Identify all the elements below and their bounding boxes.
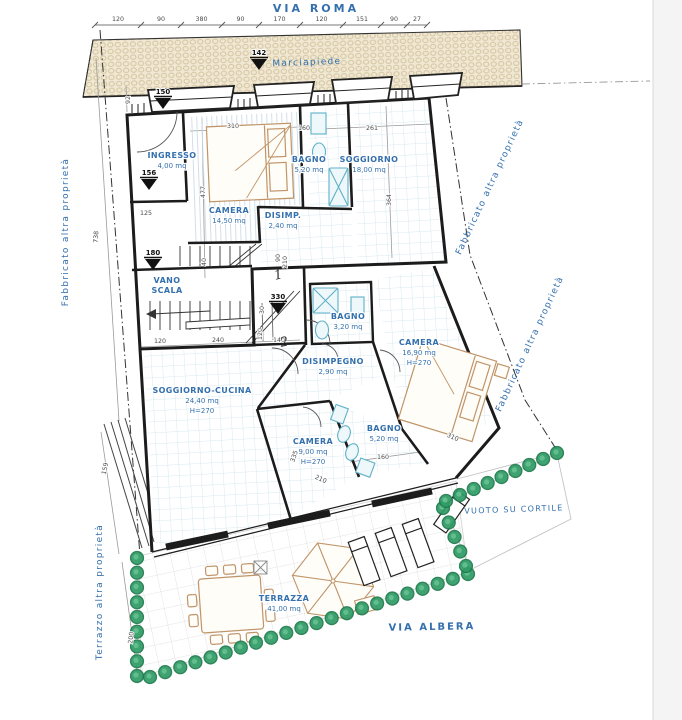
top-dimension-value: 90 xyxy=(157,16,165,23)
level-marker-value: 150 xyxy=(156,88,171,96)
floor-plan-page: 12090380901701201519027 142150156180330 … xyxy=(0,0,682,720)
page-edge-strip xyxy=(653,0,682,720)
room-label-line: BAGNO xyxy=(367,424,401,433)
level-marker-value: 156 xyxy=(142,169,157,177)
street-label-via-roma: VIA ROMA xyxy=(273,2,359,15)
room-label-line: 24,40 mq xyxy=(185,397,219,405)
room-label-line: 41,00 mq xyxy=(267,605,301,613)
area-label-terrazzo-left: Terrazzo altra proprietà xyxy=(95,524,105,661)
room-label-line: 18,00 mq xyxy=(352,166,386,174)
room-label-line: 2,90 mq xyxy=(318,368,347,376)
dimension-text: 240 xyxy=(212,337,224,344)
top-dimension-value: 380 xyxy=(195,16,207,23)
dimension-text: 90 xyxy=(275,254,282,262)
dimension-text: 92 xyxy=(125,96,132,104)
dimension-text: 125 xyxy=(140,210,152,217)
dimension-text: 40 xyxy=(201,258,208,266)
bed-double-upper xyxy=(206,123,293,202)
top-dimension-value: 120 xyxy=(112,16,124,23)
room-label-line: VANO xyxy=(154,276,181,285)
room-label-line: 3,20 mq xyxy=(333,323,362,331)
top-dimension-value: 120 xyxy=(315,16,327,23)
room-label-line: BAGNO xyxy=(292,155,326,164)
room-label-line: SOGGIORNO xyxy=(340,155,399,164)
dimension-text: 310 xyxy=(227,123,239,130)
room-label-line: SCALA xyxy=(151,286,183,295)
room-label-line: CAMERA xyxy=(209,206,250,215)
top-dimension-value: 170 xyxy=(273,16,285,23)
dimension-text: 160 xyxy=(298,125,310,132)
room-label-line: 5,20 mq xyxy=(369,435,398,443)
dimension-text: 364 xyxy=(386,194,393,206)
room-label-line: BAGNO xyxy=(331,312,365,321)
top-dimension-value: 151 xyxy=(356,16,368,23)
room-label-line: 5,20 mq xyxy=(294,166,323,174)
room-label-line: DISIMP. xyxy=(265,211,302,220)
room-label-line: CAMERA xyxy=(399,338,440,347)
room-label-line: INGRESSO xyxy=(147,151,196,160)
level-marker-value: 180 xyxy=(146,249,161,257)
top-dimension-value: 27 xyxy=(413,16,421,23)
top-dimension-value: 90 xyxy=(390,16,398,23)
room-label-line: 9,00 mq xyxy=(298,448,327,456)
level-marker-value: 142 xyxy=(252,49,267,57)
room-label-line: 4,00 mq xyxy=(157,162,186,170)
room-label-line: DISIMPEGNO xyxy=(302,357,364,366)
dimension-text: 200 xyxy=(127,631,135,644)
dimension-text: 120 xyxy=(154,338,166,345)
dimension-text: 210 xyxy=(282,256,289,268)
level-marker-value: 330 xyxy=(271,293,286,301)
room-label-line: TERRAZZA xyxy=(259,594,310,603)
room-label-line: SOGGIORNO-CUCINA xyxy=(152,386,252,395)
dimension-text: 738 xyxy=(93,231,101,243)
room-label-vano-scala: VANOSCALA xyxy=(151,276,183,295)
top-dimension-value: 90 xyxy=(236,16,244,23)
room-label-line: 2,40 mq xyxy=(268,222,297,230)
room-label-line: 16,90 mq xyxy=(402,349,436,357)
room-label-line: H=270 xyxy=(407,359,432,367)
area-label-fabbricato-left: Fabbricato altra proprietà xyxy=(61,158,71,307)
dimension-text: 120 xyxy=(257,328,264,340)
street-label-via-albera: VIA ALBERA xyxy=(389,621,476,634)
room-label-line: CAMERA xyxy=(293,437,334,446)
dimension-text: 477 xyxy=(200,186,207,198)
room-label-line: H=270 xyxy=(301,458,326,466)
nightstand xyxy=(494,364,509,379)
floor-plan-canvas: 12090380901701201519027 142150156180330 … xyxy=(0,0,682,720)
room-label-line: 14,50 mq xyxy=(212,217,246,225)
room-label-line: H=270 xyxy=(190,407,215,415)
dimension-text: 261 xyxy=(366,125,378,132)
hedge-row xyxy=(131,552,144,683)
dimension-text: 30 xyxy=(259,306,266,314)
dimension-text: 160 xyxy=(377,454,389,461)
